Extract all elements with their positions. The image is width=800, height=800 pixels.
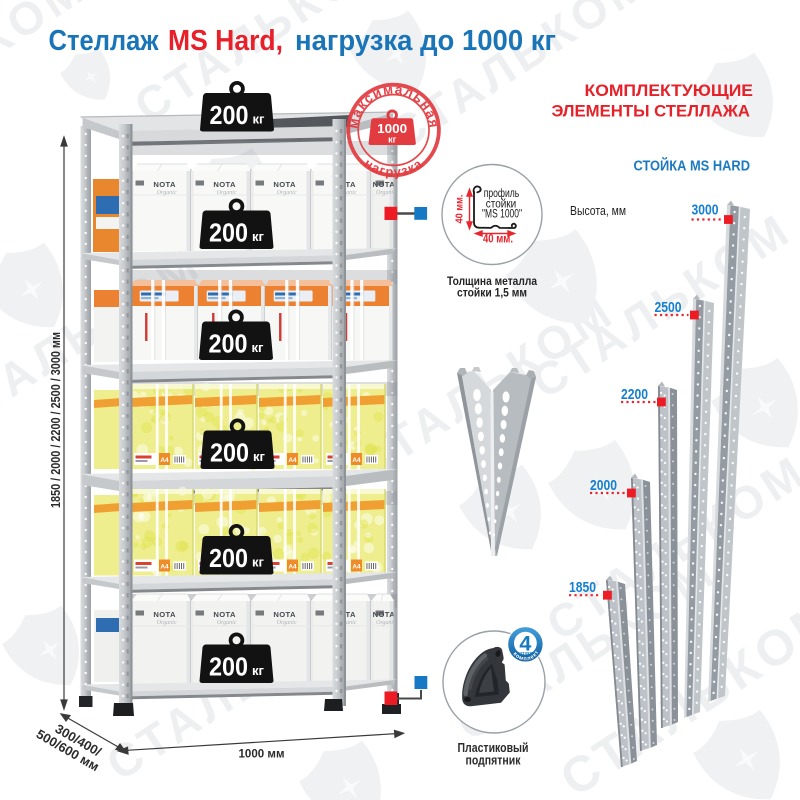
svg-text:кг: кг [252, 340, 265, 355]
svg-text:200: 200 [209, 545, 248, 573]
svg-text:стойки 1,5 мм: стойки 1,5 мм [457, 286, 527, 300]
svg-text:Organic: Organic [217, 190, 237, 196]
svg-text:A4: A4 [352, 564, 361, 571]
svg-text:1850 / 2000 / 2200 / 2500 / 30: 1850 / 2000 / 2200 / 2500 / 3000 мм [48, 332, 63, 508]
svg-text:40 мм.: 40 мм. [483, 234, 513, 246]
svg-text:Organic: Organic [157, 620, 177, 626]
svg-text:NOTA: NOTA [273, 180, 296, 189]
svg-text:A4: A4 [160, 564, 169, 571]
svg-text:2000: 2000 [590, 477, 617, 494]
svg-text:NOTA: NOTA [213, 610, 236, 619]
svg-text:A4: A4 [352, 457, 361, 464]
svg-text:Organic: Organic [217, 620, 237, 626]
svg-text:Organic: Organic [277, 190, 297, 196]
svg-text:A4: A4 [160, 457, 169, 464]
svg-text:A4: A4 [288, 457, 297, 464]
svg-text:нагрузка до 1000 кг: нагрузка до 1000 кг [295, 25, 556, 57]
svg-text:A4: A4 [288, 564, 297, 571]
svg-text:NOTA: NOTA [153, 610, 176, 619]
svg-text:MS Hard,: MS Hard, [168, 25, 283, 57]
svg-text:1850: 1850 [569, 579, 596, 596]
svg-text:Стеллаж: Стеллаж [49, 25, 159, 57]
svg-text:NOTA: NOTA [373, 610, 396, 619]
svg-text:кг: кг [252, 663, 265, 678]
svg-text:кг: кг [388, 135, 397, 145]
svg-text:2500: 2500 [655, 299, 682, 316]
svg-text:1000 мм: 1000 мм [239, 747, 285, 761]
svg-text:200: 200 [209, 654, 248, 682]
svg-text:200: 200 [210, 440, 249, 468]
svg-text:"MS 1000": "MS 1000" [482, 209, 522, 221]
svg-text:NOTA: NOTA [373, 180, 396, 189]
svg-text:подпятник: подпятник [466, 753, 521, 768]
svg-text:Organic: Organic [376, 190, 396, 196]
svg-text:кг: кг [253, 112, 266, 127]
svg-text:200: 200 [210, 102, 249, 130]
svg-text:NOTA: NOTA [273, 610, 296, 619]
svg-text:КОМПЛЕКТУЮЩИЕ: КОМПЛЕКТУЮЩИЕ [585, 81, 754, 100]
svg-text:Organic: Organic [277, 620, 297, 626]
svg-text:кг: кг [252, 229, 265, 244]
svg-text:40 мм.: 40 мм. [454, 194, 466, 223]
svg-text:200: 200 [209, 220, 248, 248]
svg-text:кг: кг [253, 449, 266, 464]
svg-text:кг: кг [252, 555, 265, 570]
svg-text:ЭЛЕМЕНТЫ СТЕЛЛАЖА: ЭЛЕМЕНТЫ СТЕЛЛАЖА [552, 102, 751, 121]
svg-text:Organic: Organic [376, 620, 396, 626]
svg-text:NOTA: NOTA [153, 180, 176, 189]
svg-text:Organic: Organic [157, 190, 177, 196]
svg-text:NOTA: NOTA [213, 180, 236, 189]
svg-text:3000: 3000 [692, 202, 719, 219]
svg-text:СТОЙКА MS HARD: СТОЙКА MS HARD [634, 156, 751, 174]
svg-text:2200: 2200 [621, 386, 648, 403]
svg-text:200: 200 [209, 331, 248, 359]
svg-text:Высота, мм: Высота, мм [570, 203, 626, 218]
